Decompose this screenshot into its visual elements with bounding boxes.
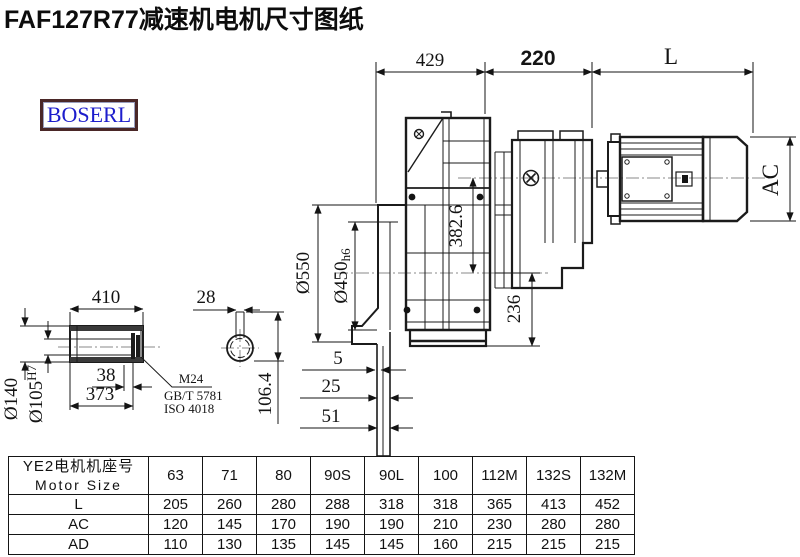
value-cell: 280 (581, 515, 635, 535)
motor-size-table: YE2电机机座号 Motor Size 63 71 80 90S 90L 100… (8, 456, 635, 555)
value-cell: 288 (311, 495, 365, 515)
value-cell: 280 (257, 495, 311, 515)
col-header: 90L (365, 457, 419, 495)
dim-51: 51 (322, 406, 341, 427)
motor-size-header: YE2电机机座号 Motor Size (9, 457, 149, 495)
col-header: 100 (419, 457, 473, 495)
dim-5: 5 (333, 348, 343, 369)
value-cell: 413 (527, 495, 581, 515)
col-header: 90S (311, 457, 365, 495)
dim-key-height: 106.4 (255, 372, 276, 415)
value-cell: 120 (149, 515, 203, 535)
col-header: 63 (149, 457, 203, 495)
col-header: 112M (473, 457, 527, 495)
top-dimensions (376, 62, 753, 203)
dim-flange-od: Ø550 (293, 252, 314, 294)
value-cell: 205 (149, 495, 203, 515)
dim-25: 25 (322, 376, 341, 397)
value-cell: 130 (203, 535, 257, 555)
value-cell: 145 (203, 515, 257, 535)
value-cell: 110 (149, 535, 203, 555)
value-cell: 190 (365, 515, 419, 535)
col-header: 132M (581, 457, 635, 495)
table-row: L 205 260 280 288 318 318 365 413 452 (9, 495, 635, 515)
note-std2: ISO 4018 (164, 401, 214, 416)
technical-drawing: 429 220 L (0, 0, 800, 456)
dim-28: 28 (197, 287, 216, 308)
dim-220: 220 (520, 47, 555, 70)
value-cell: 230 (473, 515, 527, 535)
drawing-page: FAF127R77减速机电机尺寸图纸 BOSERL 429 220 (0, 0, 800, 557)
r77-unit (495, 131, 592, 288)
col-header: 132S (527, 457, 581, 495)
value-cell: 190 (311, 515, 365, 535)
value-cell: 215 (527, 535, 581, 555)
row-label: AD (9, 535, 149, 555)
col-header: 71 (203, 457, 257, 495)
value-cell: 170 (257, 515, 311, 535)
value-cell: 160 (419, 535, 473, 555)
dim-410: 410 (92, 287, 121, 308)
value-cell: 145 (311, 535, 365, 555)
dim-spigot-tol: h6 (338, 248, 353, 262)
value-cell: 145 (365, 535, 419, 555)
dim-38: 38 (97, 365, 116, 386)
motor (597, 134, 747, 224)
dim-axis-height: 382.6 (446, 205, 467, 248)
dim-236: 236 (504, 295, 525, 324)
dim-bore: Ø105H7 (24, 364, 47, 423)
note-bolt: M24 (179, 371, 204, 386)
value-cell: 215 (473, 535, 527, 555)
table-row: AD 110 130 135 145 145 160 215 215 215 (9, 535, 635, 555)
dim-AC: AC (758, 164, 783, 196)
value-cell: 210 (419, 515, 473, 535)
dim-L: L (664, 44, 678, 69)
dim-bore-value: Ø105 (26, 381, 47, 423)
table-header-row: YE2电机机座号 Motor Size 63 71 80 90S 90L 100… (9, 457, 635, 495)
value-cell: 280 (527, 515, 581, 535)
value-cell: 365 (473, 495, 527, 515)
value-cell: 318 (365, 495, 419, 515)
header-cn: YE2电机机座号 (9, 458, 148, 476)
row-label: AC (9, 515, 149, 535)
dim-373: 373 (86, 384, 115, 405)
value-cell: 135 (257, 535, 311, 555)
table-row: AC 120 145 170 190 190 210 230 280 280 (9, 515, 635, 535)
header-en: Motor Size (9, 476, 148, 494)
value-cell: 318 (419, 495, 473, 515)
col-header: 80 (257, 457, 311, 495)
offset-dimensions (300, 370, 413, 428)
row-label: L (9, 495, 149, 515)
value-cell: 452 (581, 495, 635, 515)
dim-shaft-od: Ø140 (1, 378, 22, 420)
value-cell: 260 (203, 495, 257, 515)
dim-429: 429 (416, 50, 445, 71)
value-cell: 215 (581, 535, 635, 555)
dim-spigot: Ø450h6 (331, 248, 353, 304)
dim-spigot-value: Ø450 (331, 261, 352, 303)
center-lines (58, 178, 772, 367)
dim-bore-tol: H7 (24, 364, 39, 380)
